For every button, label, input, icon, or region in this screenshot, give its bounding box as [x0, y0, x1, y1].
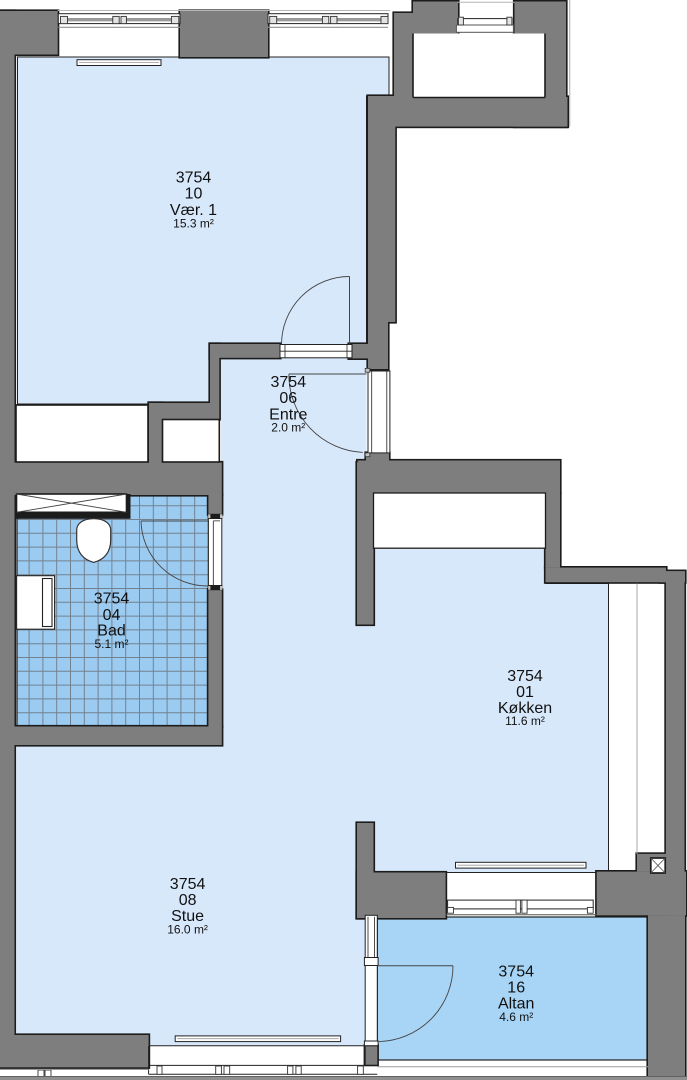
svg-text:3754: 3754 [94, 591, 130, 608]
svg-text:04: 04 [103, 607, 121, 624]
svg-text:5.1 m²: 5.1 m² [94, 637, 128, 651]
svg-text:01: 01 [516, 684, 534, 701]
svg-text:3754: 3754 [176, 170, 212, 187]
svg-text:06: 06 [279, 390, 297, 407]
svg-text:3754: 3754 [271, 374, 307, 391]
svg-text:10: 10 [185, 186, 203, 203]
svg-text:08: 08 [179, 892, 197, 909]
svg-text:15.3 m²: 15.3 m² [173, 217, 214, 231]
svg-text:11.6 m²: 11.6 m² [505, 714, 545, 728]
svg-text:2.0 m²: 2.0 m² [271, 421, 305, 435]
svg-text:3754: 3754 [170, 876, 206, 893]
svg-text:3754: 3754 [507, 668, 543, 685]
svg-text:16: 16 [507, 980, 525, 997]
svg-text:4.6 m²: 4.6 m² [499, 1010, 533, 1024]
svg-text:16.0 m²: 16.0 m² [167, 923, 208, 937]
svg-text:3754: 3754 [498, 964, 534, 981]
